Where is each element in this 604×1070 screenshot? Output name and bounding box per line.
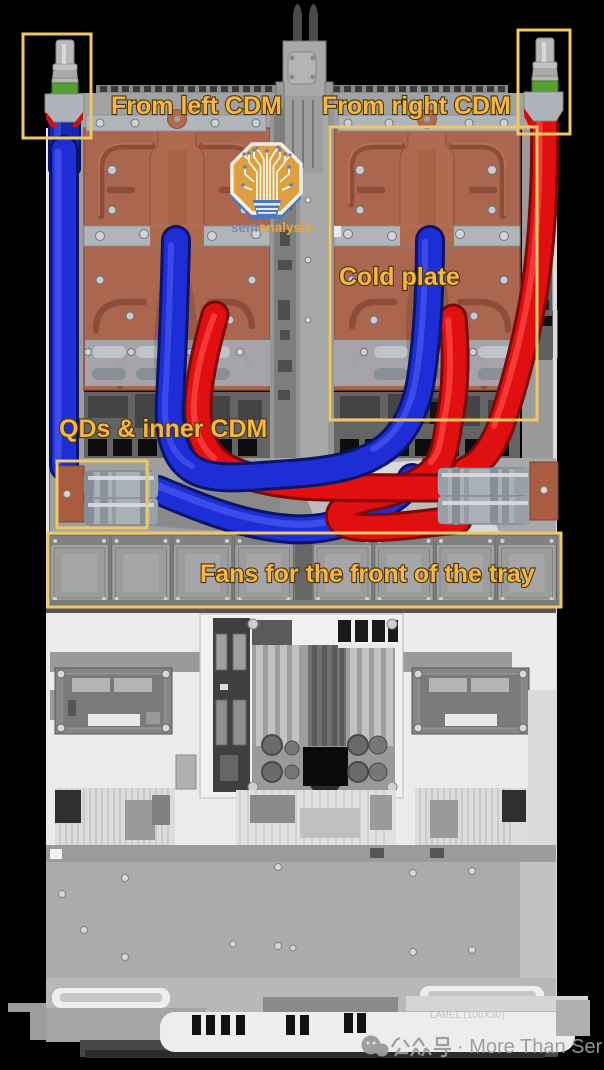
svg-text:analysis: analysis [259, 220, 312, 235]
svg-text:From left CDM: From left CDM [111, 92, 282, 120]
svg-text:From right CDM: From right CDM [322, 92, 511, 120]
svg-text:semi: semi [231, 220, 262, 235]
svg-text:Cold plate: Cold plate [339, 263, 460, 291]
svg-text:Fans for the front of the tray: Fans for the front of the tray [200, 560, 535, 588]
svg-text:· More Than Ser: · More Than Ser [457, 1036, 603, 1058]
svg-text:LABEL (100X30): LABEL (100X30) [430, 1010, 505, 1021]
svg-text:QDs & inner CDM: QDs & inner CDM [59, 415, 267, 443]
